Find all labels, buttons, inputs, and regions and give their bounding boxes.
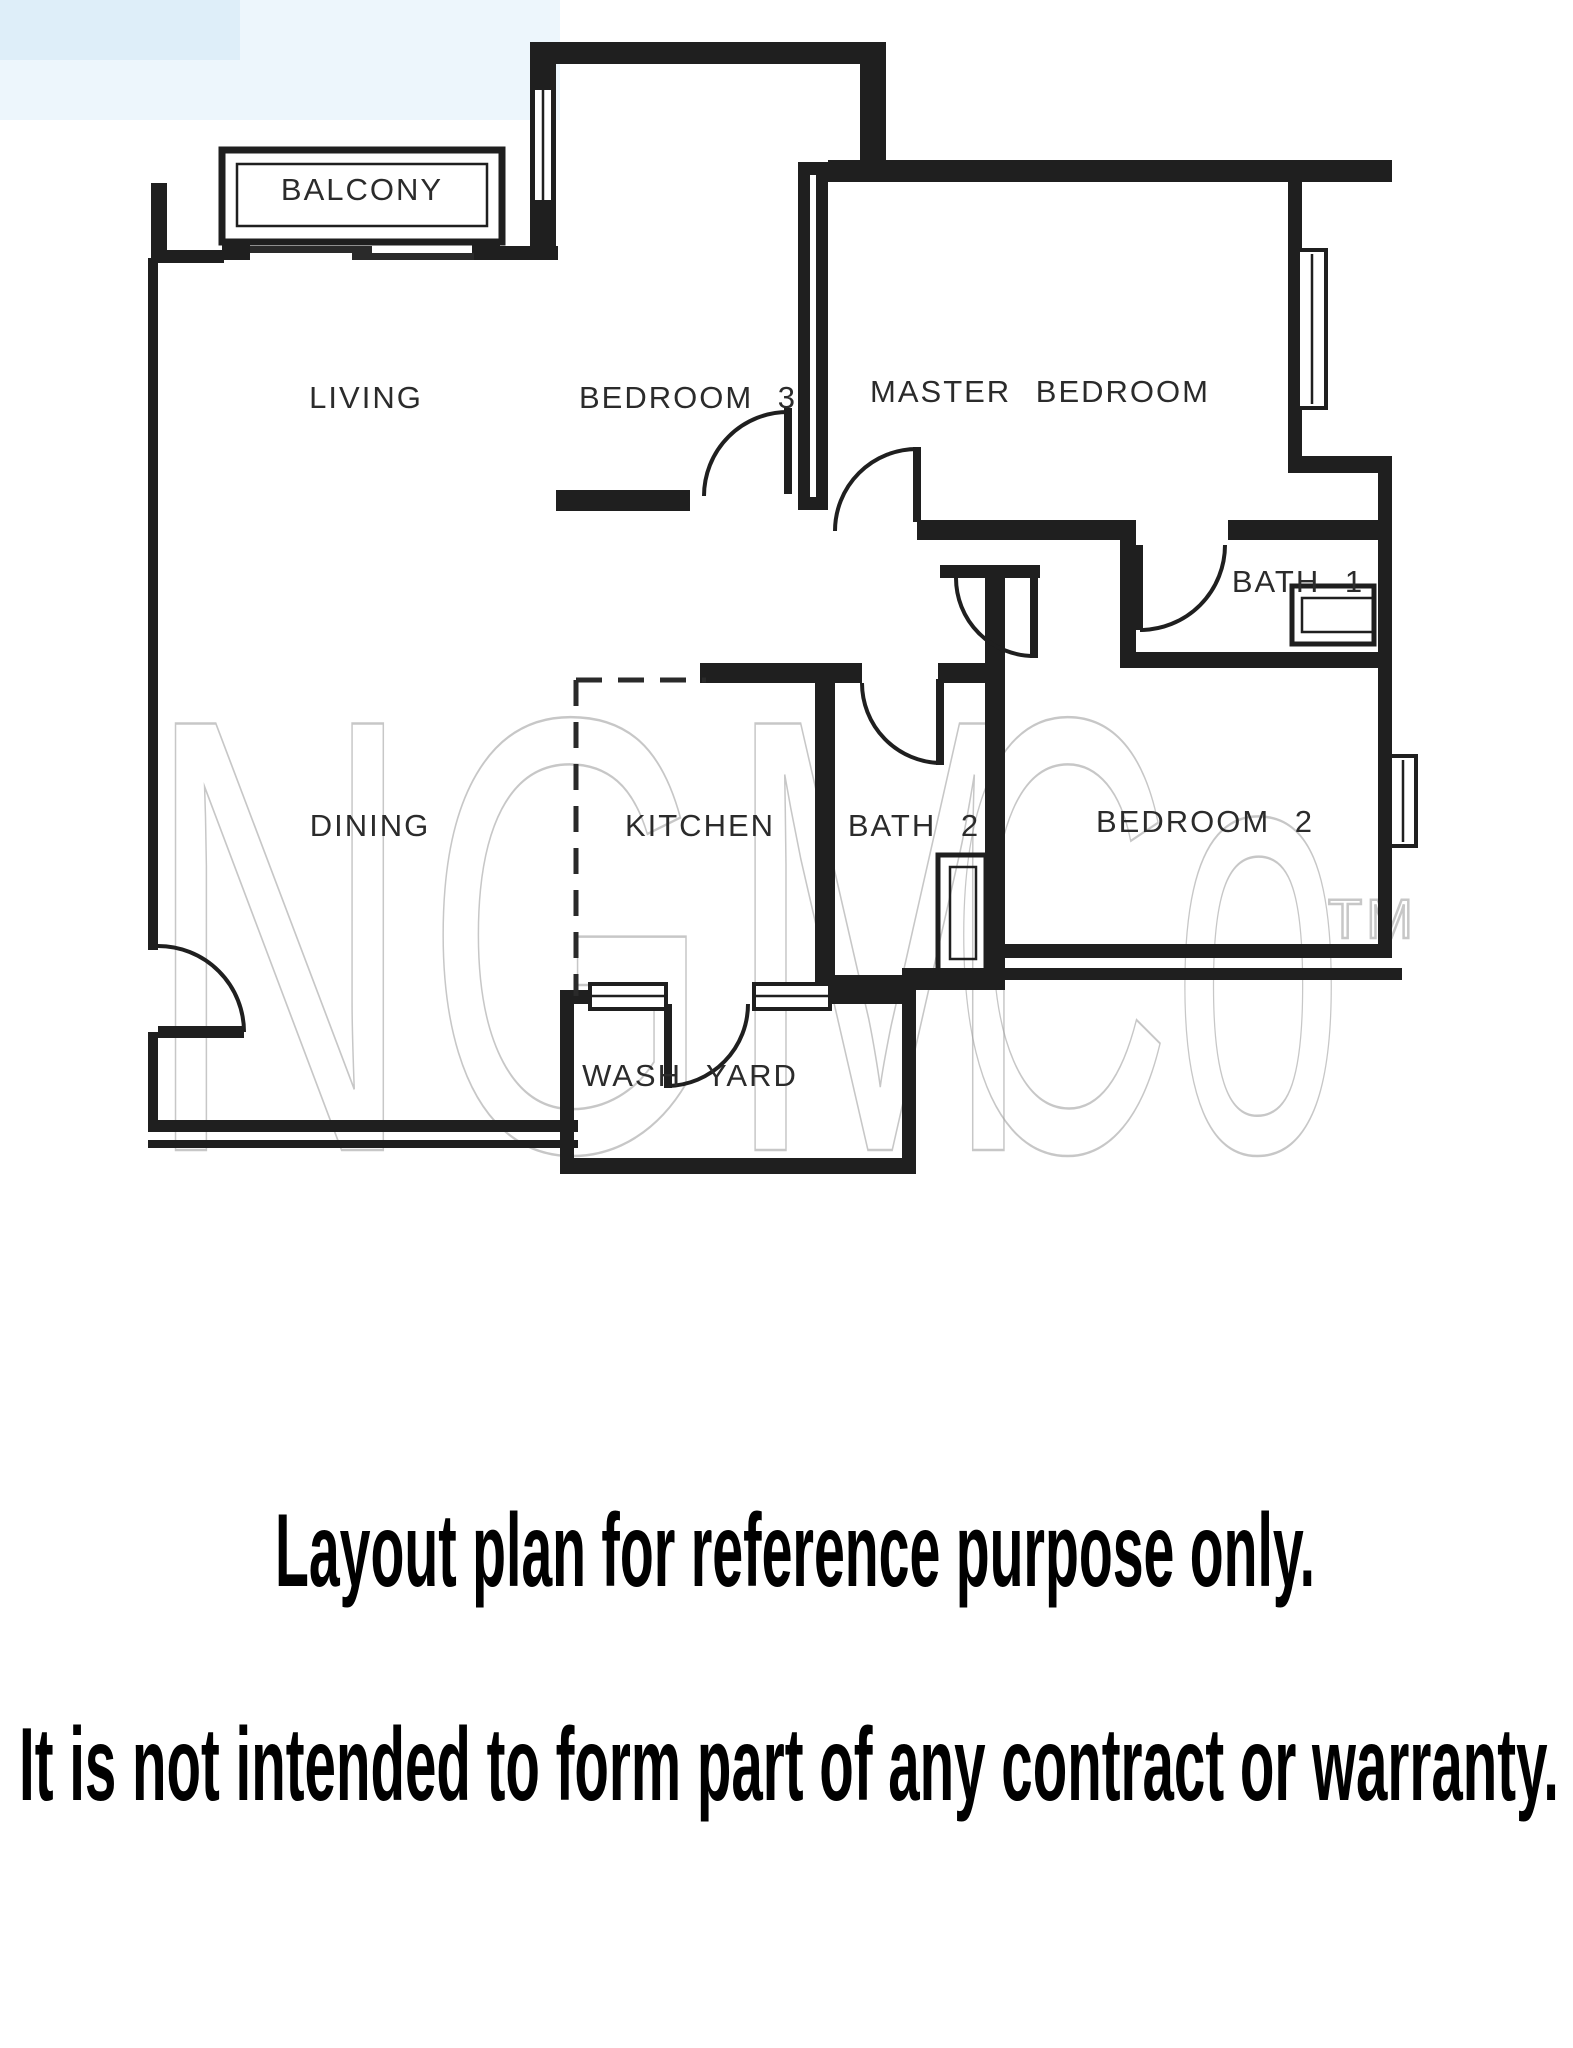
scan-tint	[0, 0, 560, 120]
watermark: NGM Co TM	[145, 588, 1417, 1282]
room-label-bedroom-3: BEDROOM 3	[579, 380, 797, 415]
disclaimer-line-1: Layout plan for reference purpose only.	[275, 1493, 1315, 1609]
room-label-wash-yard: WASH YARD	[582, 1058, 798, 1093]
bedroom2-window	[1390, 756, 1416, 846]
disclaimer-line-2: It is not intended to form part of any c…	[19, 1707, 1559, 1823]
room-label-kitchen: KITCHEN	[625, 808, 775, 843]
bedroom3-door	[704, 408, 792, 496]
wash-yard-window-left	[590, 984, 666, 1009]
watermark-co: Co	[948, 588, 1344, 1281]
room-label-balcony: BALCONY	[281, 172, 443, 207]
floor-plan-svg: NGM Co TM	[0, 0, 1573, 2048]
floor-plan-page: NGM Co TM	[0, 0, 1573, 2048]
disclaimer: Layout plan for reference purpose only. …	[19, 1493, 1559, 1823]
room-label-bedroom-2: BEDROOM 2	[1096, 804, 1314, 839]
bedroom3-window	[533, 88, 553, 202]
watermark-ngm: NGM	[145, 590, 1045, 1282]
wash-yard-window-right	[754, 984, 830, 1009]
room-label-living: LIVING	[309, 380, 423, 415]
watermark-tm: TM	[1328, 887, 1417, 950]
master-bedroom-door	[835, 447, 921, 531]
room-label-bath-2: BATH 2	[848, 808, 980, 843]
master-bedroom-window	[1298, 250, 1326, 408]
room-label-bath-1: BATH 1	[1232, 564, 1364, 599]
room-label-dining: DINING	[310, 808, 431, 843]
room-label-master-bedroom: MASTER BEDROOM	[870, 374, 1210, 409]
